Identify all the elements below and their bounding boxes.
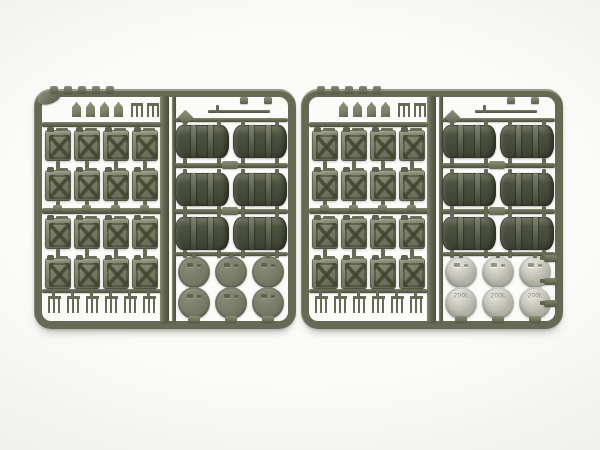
tap-spigot-part — [544, 278, 557, 285]
drum-cap-part — [240, 97, 248, 104]
runner-stub — [508, 213, 512, 218]
runner-stub — [496, 253, 500, 258]
runner-stub — [183, 121, 187, 126]
jerry-can-cap — [134, 167, 141, 172]
runner-stub — [183, 213, 187, 218]
runner-tab — [225, 316, 237, 322]
jerry-can — [103, 170, 129, 201]
fuel-drum-rib — [249, 125, 254, 158]
jerry-can-cap — [105, 255, 112, 260]
fuel-drum-rib — [191, 173, 196, 206]
jerry-can — [103, 218, 129, 249]
jerry-can-cap — [76, 167, 83, 172]
runner-stub — [217, 121, 221, 126]
divider-rail — [160, 96, 169, 322]
runner-stub — [450, 213, 454, 218]
drum-lid-bung — [261, 294, 267, 298]
jerry-can-cap — [134, 215, 141, 220]
jerry-can-cross-panel — [107, 135, 128, 159]
drum-lid — [445, 256, 477, 288]
jerry-can-handle — [352, 216, 364, 219]
jerry-can-cross-panel — [374, 175, 395, 199]
jerry-can-cap — [314, 127, 321, 132]
handle-comb-part — [147, 103, 159, 117]
jerry-can — [45, 258, 71, 289]
fuel-drum-rib — [533, 173, 538, 206]
runner-stub — [508, 250, 512, 258]
fuel-drum-rib — [516, 217, 521, 250]
nozzle-comb-part — [391, 296, 404, 313]
fuel-drum-rib — [458, 173, 463, 206]
runner-stub — [484, 169, 488, 174]
jerry-can-cross-panel — [345, 263, 366, 287]
drum-lid-bung — [234, 295, 238, 298]
jerry-can-handle — [323, 168, 335, 171]
jerry-can — [341, 218, 367, 249]
jerry-can-handle — [381, 216, 393, 219]
siphon-pin-part — [483, 105, 486, 113]
runner-tab — [529, 316, 541, 322]
jerry-can — [45, 130, 71, 161]
filler-cap-part — [359, 86, 367, 93]
runner-tab — [378, 205, 387, 211]
jerry-can-handle — [410, 128, 422, 131]
drum-lid-capacity-label: 200L — [448, 294, 474, 300]
fuel-drum-rib — [475, 217, 480, 250]
jerry-can — [132, 218, 158, 249]
jerry-can-cap — [47, 127, 54, 132]
filler-cap-part — [64, 86, 72, 93]
jerry-can-handle — [381, 256, 393, 259]
jerry-can — [103, 130, 129, 161]
runner-stub — [217, 213, 221, 218]
drum-lid: 200L — [482, 287, 514, 319]
jerry-bottom-rail — [309, 289, 428, 293]
runner-stub — [241, 169, 245, 174]
jerry-can-cross-panel — [78, 175, 99, 199]
drum-lid-bung — [187, 263, 193, 267]
jerry-can-cap — [314, 167, 321, 172]
clamp-part — [489, 207, 505, 215]
jerry-can — [312, 258, 338, 289]
jerry-can-handle — [114, 128, 126, 131]
jerry-can — [312, 130, 338, 161]
jerry-can-cap — [372, 127, 379, 132]
jerry-can-handle — [381, 128, 393, 131]
jerry-can-cross-panel — [49, 223, 70, 247]
jerry-can-handle — [323, 256, 335, 259]
jerry-can-handle — [85, 168, 97, 171]
jerry-can-handle — [410, 256, 422, 259]
runner-tab — [53, 205, 62, 211]
runner-stub — [241, 213, 245, 218]
jerry-bottom-rail — [42, 289, 161, 293]
drum-lid-bung — [454, 263, 460, 267]
jerry-can-handle — [323, 128, 335, 131]
jerry-can-cap — [105, 167, 112, 172]
runner-tab — [455, 316, 467, 322]
jerry-can-cap — [76, 127, 83, 132]
jerry-can-cap — [343, 167, 350, 172]
drum-cap-part — [507, 97, 515, 104]
jerry-can — [74, 130, 100, 161]
drum-lid — [215, 287, 247, 319]
fuel-drum-rib — [208, 173, 213, 206]
fuel-drum-rib — [516, 173, 521, 206]
jerry-can — [132, 258, 158, 289]
jerry-can-handle — [352, 128, 364, 131]
jerry-can-cap — [314, 215, 321, 220]
jerry-can — [399, 170, 425, 201]
fuel-drum — [500, 217, 554, 250]
jerry-can-cap — [343, 127, 350, 132]
jerry-can-cap — [401, 215, 408, 220]
runner-tab — [492, 316, 504, 322]
jerry-can-cap — [47, 167, 54, 172]
fuel-drum — [233, 125, 287, 158]
jerry-can-cross-panel — [374, 263, 395, 287]
tap-spigot-part — [544, 300, 557, 307]
fuel-drum-rib — [458, 125, 463, 158]
jerry-can-handle — [143, 216, 155, 219]
jerry-can-handle — [323, 216, 335, 219]
jerry-can-cross-panel — [374, 135, 395, 159]
runner-stub — [484, 213, 488, 218]
photo-canvas: { "scene": { "type": "photograph", "subj… — [0, 0, 600, 450]
runner-stub — [241, 250, 245, 258]
jerry-can — [341, 130, 367, 161]
fuel-drum-rib — [266, 217, 271, 250]
jerry-can-cross-panel — [49, 263, 70, 287]
jerry-can-handle — [410, 216, 422, 219]
jerry-can-handle — [114, 216, 126, 219]
siphon-pin-part — [216, 105, 219, 113]
drum-cap-part — [264, 97, 272, 104]
jerry-can-cap — [401, 127, 408, 132]
jerry-can — [74, 170, 100, 201]
jerry-can — [132, 130, 158, 161]
jerry-can — [370, 130, 396, 161]
fuel-drum — [442, 217, 496, 250]
jerry-can-handle — [56, 128, 68, 131]
runner-stub — [450, 158, 454, 166]
photo-of-model-sprues: 200L200L200L — [0, 0, 600, 450]
jerry-can — [370, 170, 396, 201]
jerry-can-cap — [76, 215, 83, 220]
jerry-can — [312, 170, 338, 201]
drum-lid — [252, 287, 284, 319]
runner-stub — [229, 253, 233, 258]
drum-lid-bung — [491, 263, 497, 267]
jerry-can-cross-panel — [316, 223, 337, 247]
divider-rail — [427, 96, 436, 322]
drum-lid-capacity-label: 200L — [485, 294, 511, 300]
tap-spigot-part — [544, 255, 557, 262]
handle-comb-part — [414, 103, 426, 117]
fuel-drum-rib — [516, 125, 521, 158]
jerry-can — [370, 258, 396, 289]
jerry-can-handle — [114, 256, 126, 259]
clamp-part — [222, 161, 238, 169]
jerry-can-cross-panel — [136, 175, 157, 199]
runner-stub — [459, 253, 463, 258]
fuel-drum-rib — [266, 125, 271, 158]
jerry-can-handle — [143, 168, 155, 171]
drum-lid-bung — [224, 263, 230, 267]
sprue-left — [34, 89, 296, 329]
jerry-can-cap — [343, 215, 350, 220]
jerry-can-cross-panel — [345, 223, 366, 247]
filler-cap-part — [331, 86, 339, 93]
jerry-can-cap — [105, 215, 112, 220]
fuel-drum-rib — [533, 217, 538, 250]
fuel-drum — [500, 125, 554, 158]
fuel-drum — [442, 125, 496, 158]
jerry-can-cap — [47, 215, 54, 220]
jerry-can-cross-panel — [136, 263, 157, 287]
jerry-can-cap — [134, 127, 141, 132]
jerry-can-cross-panel — [49, 175, 70, 199]
drum-lid-bung — [538, 264, 542, 267]
jerry-can — [45, 218, 71, 249]
fuel-drum-rib — [208, 217, 213, 250]
drum-lid-capacity-label: 200L — [522, 294, 548, 300]
jerry-can-cap — [401, 255, 408, 260]
jerry-can-cross-panel — [107, 175, 128, 199]
nozzle-comb-part — [143, 296, 156, 313]
runner-stub — [542, 169, 546, 174]
jerry-can-cap — [372, 167, 379, 172]
filler-cap-part — [373, 86, 381, 93]
fuel-drum-rib — [208, 125, 213, 158]
fuel-drum — [233, 217, 287, 250]
sprue-right: 200L200L200L — [301, 89, 563, 329]
filler-cap-part — [106, 86, 114, 93]
jerry-can-cross-panel — [49, 135, 70, 159]
drum-lid-bung — [224, 294, 230, 298]
runner-stub — [266, 253, 270, 258]
jerry-can-handle — [410, 168, 422, 171]
filler-cap-part — [50, 86, 58, 93]
runner-stub — [484, 250, 488, 258]
jerry-can-cross-panel — [403, 223, 424, 247]
jerry-can-cap — [76, 255, 83, 260]
nozzle-comb-part — [315, 296, 328, 313]
drum-lid-bung — [271, 264, 275, 267]
fuel-drum-rib — [475, 125, 480, 158]
runner-stub — [484, 121, 488, 126]
nozzle-comb-part — [334, 296, 347, 313]
handle-comb-part — [398, 103, 410, 117]
jerry-can-handle — [352, 168, 364, 171]
fuel-drum — [233, 173, 287, 206]
jerry-can — [399, 258, 425, 289]
nozzle-comb-part — [124, 296, 137, 313]
drum-lid-bung — [197, 264, 201, 267]
handle-comb-part — [131, 103, 143, 117]
runner-tab — [407, 205, 416, 211]
jerry-can — [341, 170, 367, 201]
runner-stub — [275, 169, 279, 174]
drum-lid-bung — [528, 263, 534, 267]
runner-tab — [320, 205, 329, 211]
runner-stub — [484, 158, 488, 166]
filler-cap-part — [317, 86, 325, 93]
jerry-can-cross-panel — [403, 263, 424, 287]
jerry-can-cross-panel — [345, 175, 366, 199]
jerry-can-cross-panel — [107, 223, 128, 247]
jerry-can-handle — [352, 256, 364, 259]
jerry-can-handle — [85, 216, 97, 219]
drum-lid — [215, 256, 247, 288]
runner-stub — [533, 253, 537, 258]
jerry-can-cross-panel — [78, 223, 99, 247]
drum-lid: 200L — [445, 287, 477, 319]
jerry-can — [370, 218, 396, 249]
runner-stub — [450, 121, 454, 126]
nozzle-comb-part — [105, 296, 118, 313]
runner-stub — [241, 121, 245, 126]
clamp-part — [489, 161, 505, 169]
jerry-can — [341, 258, 367, 289]
jerry-can-cross-panel — [403, 175, 424, 199]
jerry-top-rail — [42, 122, 161, 127]
jerry-can-cap — [401, 167, 408, 172]
jerry-can — [132, 170, 158, 201]
fuel-drum — [175, 125, 229, 158]
drum-lid — [178, 256, 210, 288]
jerry-can-cap — [343, 255, 350, 260]
fuel-drum — [500, 173, 554, 206]
fuel-drum-rib — [475, 173, 480, 206]
drum-lid — [482, 256, 514, 288]
jerry-can-cap — [314, 255, 321, 260]
runner-tab — [140, 205, 149, 211]
nozzle-comb-part — [353, 296, 366, 313]
jerry-can — [74, 258, 100, 289]
runner-tab — [349, 205, 358, 211]
nozzle-comb-part — [410, 296, 423, 313]
jerry-can-handle — [85, 256, 97, 259]
jerry-can-cap — [47, 255, 54, 260]
jerry-can — [312, 218, 338, 249]
runner-stub — [275, 158, 279, 166]
jerry-can-cross-panel — [316, 175, 337, 199]
runner-stub — [183, 169, 187, 174]
runner-stub — [508, 121, 512, 126]
jerry-can-cross-panel — [107, 263, 128, 287]
drum-lid-bung — [261, 263, 267, 267]
jerry-can-cross-panel — [78, 263, 99, 287]
jerry-can-cap — [105, 127, 112, 132]
runner-stub — [217, 169, 221, 174]
jerry-can-cap — [372, 255, 379, 260]
jerry-can-cross-panel — [345, 135, 366, 159]
runner-stub — [217, 250, 221, 258]
jerry-can-handle — [143, 256, 155, 259]
jerry-can-handle — [114, 168, 126, 171]
clamp-part — [222, 207, 238, 215]
runner-tab — [188, 316, 200, 322]
jerry-can-cap — [372, 215, 379, 220]
fuel-drum-rib — [533, 125, 538, 158]
drum-lid — [178, 287, 210, 319]
filler-cap-part — [92, 86, 100, 93]
jerry-can-cross-panel — [403, 135, 424, 159]
fuel-drum — [442, 173, 496, 206]
filler-cap-part — [345, 86, 353, 93]
drum-lid-bung — [234, 264, 238, 267]
runner-stub — [508, 169, 512, 174]
runner-stub — [508, 158, 512, 166]
runner-tab — [111, 205, 120, 211]
jerry-top-rail — [309, 122, 428, 127]
drum-lid-bung — [501, 264, 505, 267]
jerry-can-cap — [134, 255, 141, 260]
jerry-can-cross-panel — [136, 223, 157, 247]
fuel-drum-rib — [191, 125, 196, 158]
jerry-can — [399, 218, 425, 249]
runner-stub — [183, 158, 187, 166]
fuel-drum-rib — [249, 217, 254, 250]
jerry-can-cross-panel — [316, 263, 337, 287]
jerry-can-handle — [85, 128, 97, 131]
nozzle-comb-part — [67, 296, 80, 313]
jerry-can-cross-panel — [78, 135, 99, 159]
drum-lid-bung — [464, 264, 468, 267]
fuel-drum-rib — [266, 173, 271, 206]
jerry-can-handle — [381, 168, 393, 171]
jerry-can-handle — [56, 256, 68, 259]
fuel-drum-rib — [249, 173, 254, 206]
runner-stub — [275, 213, 279, 218]
fuel-drum-rib — [191, 217, 196, 250]
jerry-can-handle — [143, 128, 155, 131]
nozzle-comb-part — [48, 296, 61, 313]
fuel-drum — [175, 173, 229, 206]
runner-stub — [275, 250, 279, 258]
jerry-can — [45, 170, 71, 201]
runner-stub — [241, 158, 245, 166]
runner-stub — [542, 121, 546, 126]
jerry-can-cross-panel — [136, 135, 157, 159]
nozzle-comb-part — [372, 296, 385, 313]
jerry-can-handle — [56, 216, 68, 219]
jerry-can — [74, 218, 100, 249]
runner-tab — [262, 316, 274, 322]
runner-stub — [542, 158, 546, 166]
jerry-can — [103, 258, 129, 289]
runner-stub — [275, 121, 279, 126]
drum-lid-bung — [187, 294, 193, 298]
runner-stub — [192, 253, 196, 258]
jerry-can-cross-panel — [374, 223, 395, 247]
runner-stub — [217, 158, 221, 166]
jerry-can-cross-panel — [316, 135, 337, 159]
drum-lid-bung — [271, 295, 275, 298]
runner-stub — [450, 169, 454, 174]
drum-lid-bung — [197, 295, 201, 298]
jerry-can-handle — [56, 168, 68, 171]
drum-cap-part — [531, 97, 539, 104]
fuel-drum-rib — [458, 217, 463, 250]
fuel-drum — [175, 217, 229, 250]
filler-cap-part — [78, 86, 86, 93]
nozzle-comb-part — [86, 296, 99, 313]
jerry-can — [399, 130, 425, 161]
drum-lid — [252, 256, 284, 288]
runner-tab — [82, 205, 91, 211]
